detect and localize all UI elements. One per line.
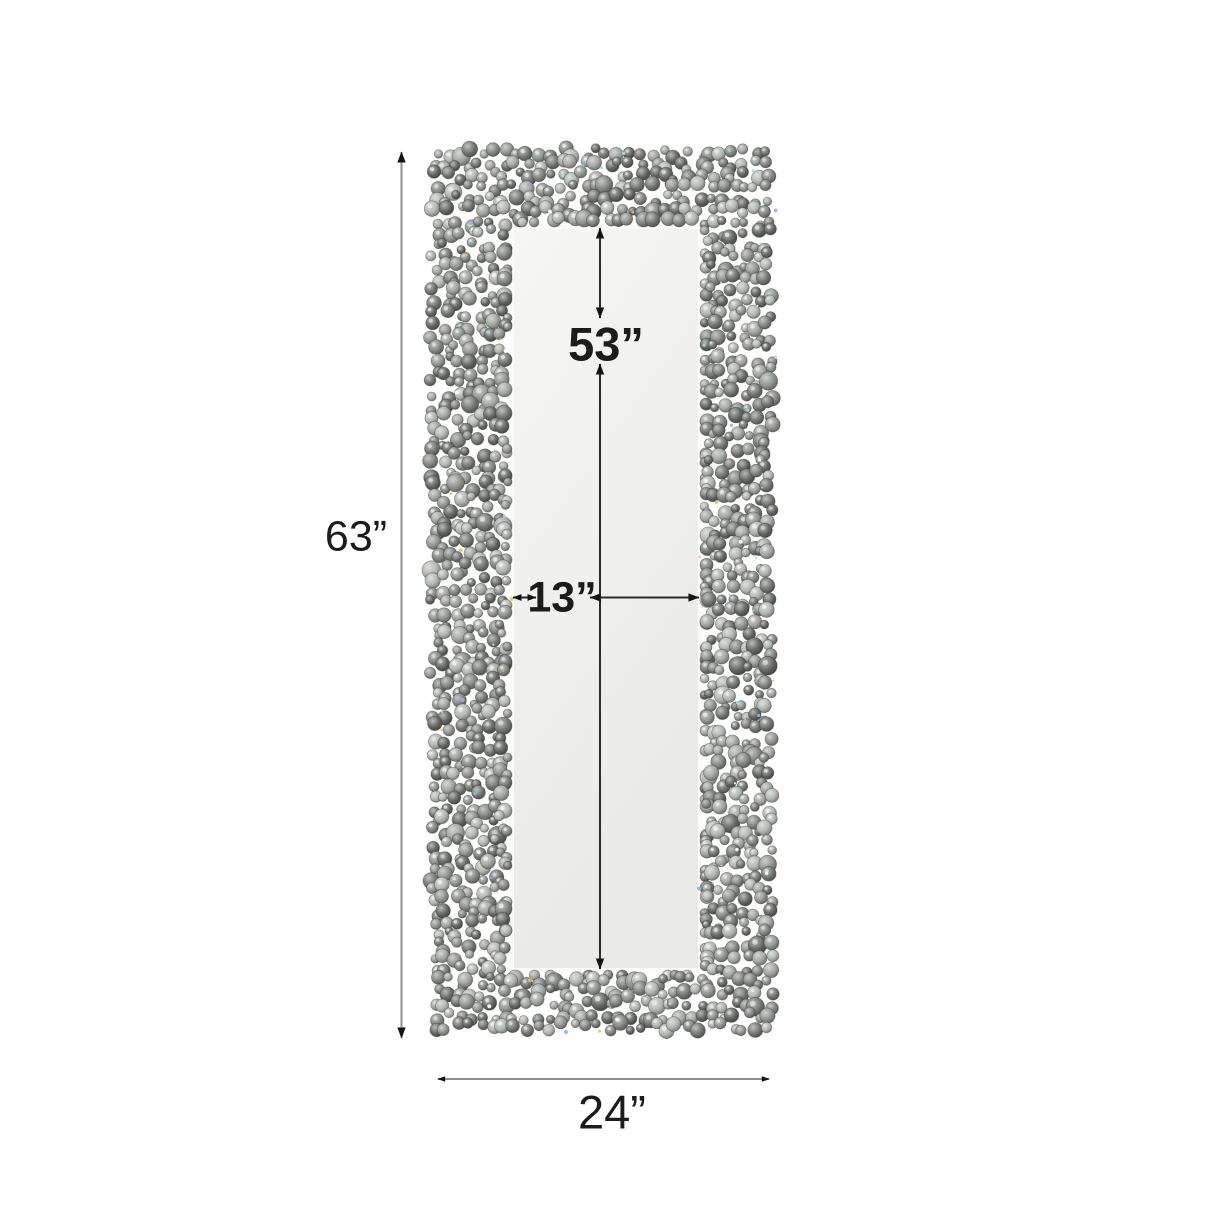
mirror-height-label: 53” — [568, 321, 644, 368]
diagram-canvas: 63” 24” 53” 13” — [0, 0, 1214, 1214]
overall-width-label: 24” — [578, 1089, 646, 1136]
mirror-width-label: 13” — [527, 577, 596, 620]
overall-height-label: 63” — [325, 516, 387, 559]
mirror-dimension-diagram — [0, 0, 1214, 1214]
